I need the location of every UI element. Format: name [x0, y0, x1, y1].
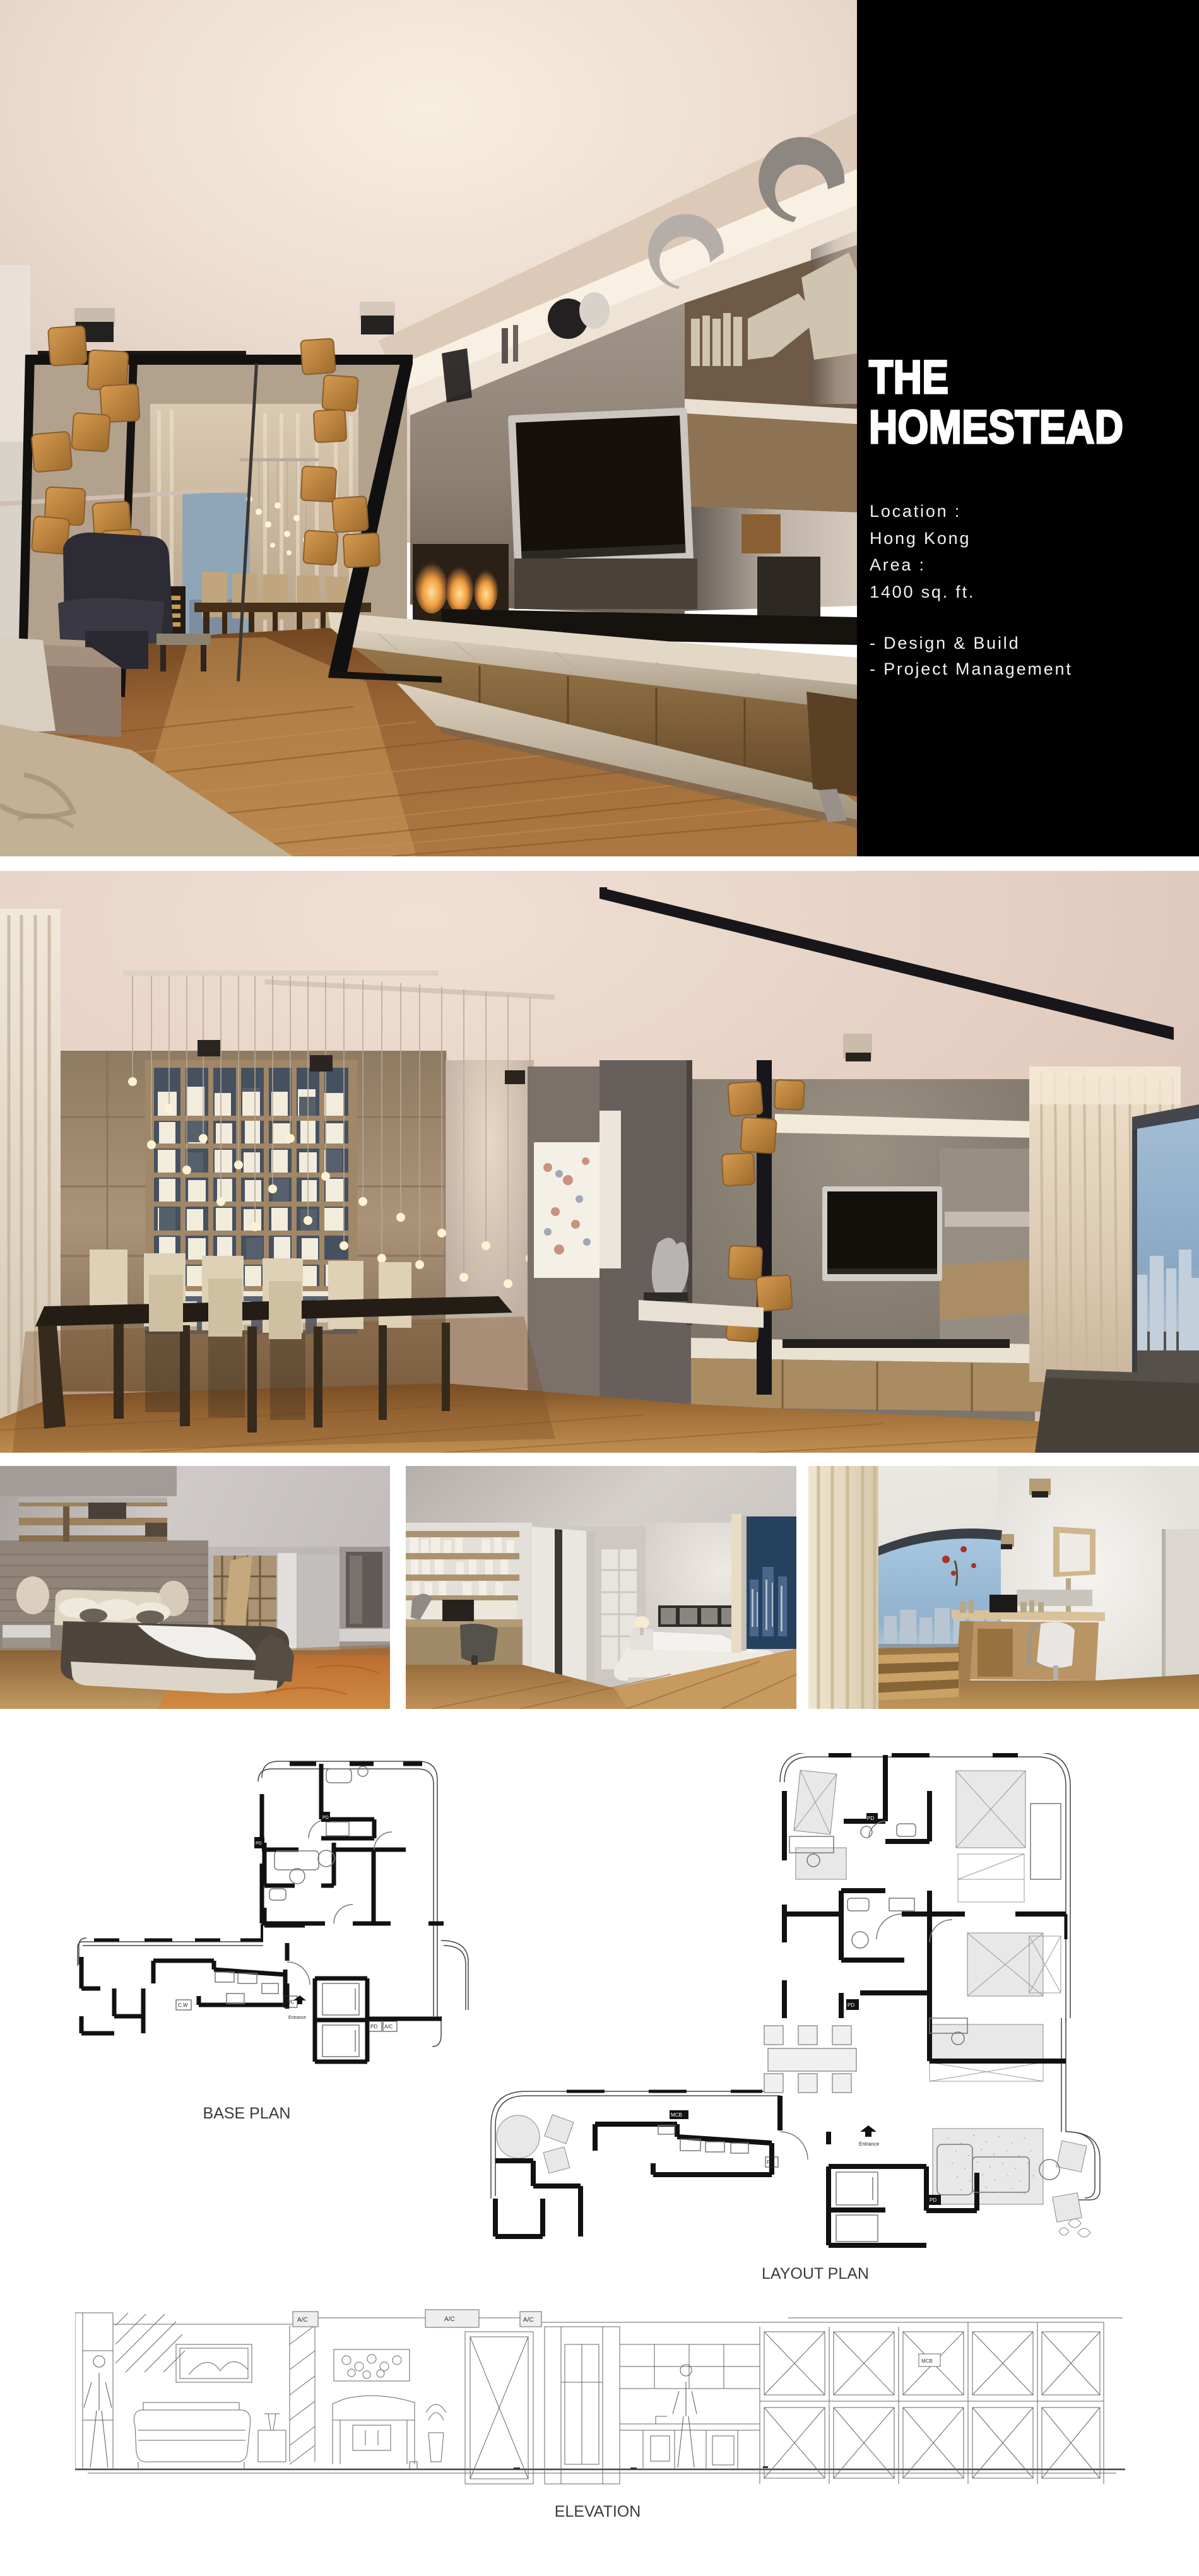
svg-text:A/C: A/C	[286, 1999, 295, 2005]
svg-text:PD: PD	[867, 1816, 874, 1821]
svg-text:A/C: A/C	[523, 2317, 534, 2324]
svg-text:Entrance: Entrance	[859, 2141, 880, 2147]
svg-text:PD: PD	[930, 2197, 936, 2203]
svg-text:C.W: C.W	[178, 2002, 188, 2008]
svg-text:MCB: MCB	[671, 2112, 682, 2118]
svg-text:A/C: A/C	[444, 2316, 455, 2323]
svg-text:PD: PD	[767, 2159, 774, 2165]
svg-text:PD: PD	[370, 2024, 377, 2029]
svg-text:Entrance: Entrance	[288, 2016, 306, 2020]
svg-text:A/C: A/C	[297, 2317, 308, 2324]
svg-text:A/C: A/C	[384, 2024, 393, 2029]
svg-text:PD: PD	[848, 2002, 854, 2008]
svg-text:PD: PD	[256, 1841, 262, 1846]
svg-text:MCB: MCB	[921, 2358, 933, 2364]
svg-text:PD: PD	[322, 1816, 329, 1820]
